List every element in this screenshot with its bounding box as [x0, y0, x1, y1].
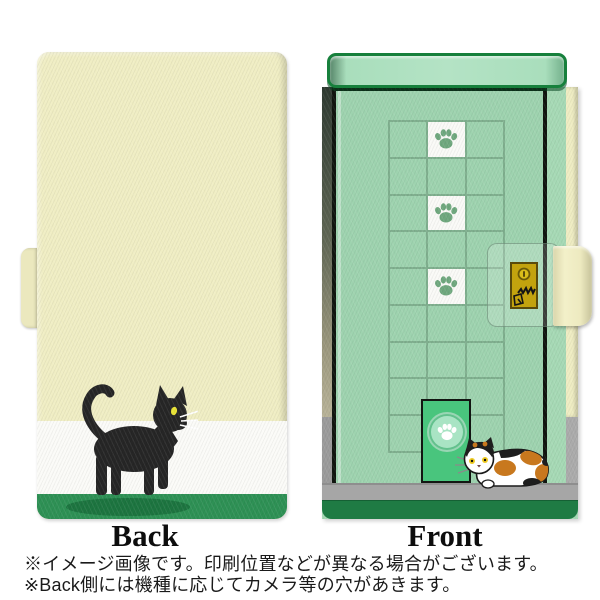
- door-grid-cell: [389, 268, 427, 305]
- paw-icon: [433, 273, 459, 299]
- door-grid-cell: [389, 195, 427, 232]
- door-grid-cell: [427, 305, 465, 342]
- front-bottom-band: [322, 500, 578, 519]
- black-cat-body: [94, 385, 187, 495]
- back-label: Back: [30, 518, 260, 554]
- door-grid-cell: [389, 305, 427, 342]
- door-grid-cell: [466, 158, 504, 195]
- back-case: [37, 52, 287, 519]
- door-grid-cell: [427, 231, 465, 268]
- paw-icon: [433, 200, 459, 226]
- front-cream-edge-gray: [566, 417, 578, 483]
- door-grid-cell: [427, 158, 465, 195]
- disclaimer-note-2: ※Back側には機種に応じてカメラ等の穴があきます。: [24, 575, 594, 596]
- door-grid-cell: [466, 121, 504, 158]
- door-grid-cell: [427, 342, 465, 379]
- door-frame-left: [332, 87, 336, 483]
- door-grid-cell: [389, 231, 427, 268]
- front-spine-edge-gray: [322, 417, 332, 483]
- calico-paw: [482, 480, 494, 488]
- front-label: Front: [330, 518, 560, 554]
- front-lintel-bar: [327, 53, 567, 88]
- door-grid-cell: [466, 195, 504, 232]
- black-cat-icon: [68, 383, 198, 498]
- paw-tile: [427, 195, 465, 232]
- door-grid-cell: [389, 158, 427, 195]
- door-highlight: [338, 91, 341, 483]
- front-spine-edge: [322, 87, 332, 417]
- door-grid-cell: [466, 378, 504, 415]
- paw-icon: [433, 126, 459, 152]
- clasp-plate: [510, 262, 538, 309]
- paw-tile: [427, 268, 465, 305]
- calico-cat-icon: [455, 436, 555, 489]
- front-case: [322, 87, 578, 519]
- cat-shadow: [66, 498, 190, 516]
- door-grid-cell: [389, 121, 427, 158]
- door-grid-cell: [389, 342, 427, 379]
- door-grid-cell: [466, 342, 504, 379]
- clasp-strap-edge: [553, 246, 592, 326]
- product-photo: Back Front ※イメージ画像です。印刷位置などが異なる場合がございます。…: [0, 0, 600, 600]
- disclaimer-notes: ※イメージ画像です。印刷位置などが異なる場合がございます。 ※Back側には機種…: [24, 554, 594, 596]
- disclaimer-note-1: ※イメージ画像です。印刷位置などが異なる場合がございます。: [24, 554, 594, 575]
- paw-tile: [427, 121, 465, 158]
